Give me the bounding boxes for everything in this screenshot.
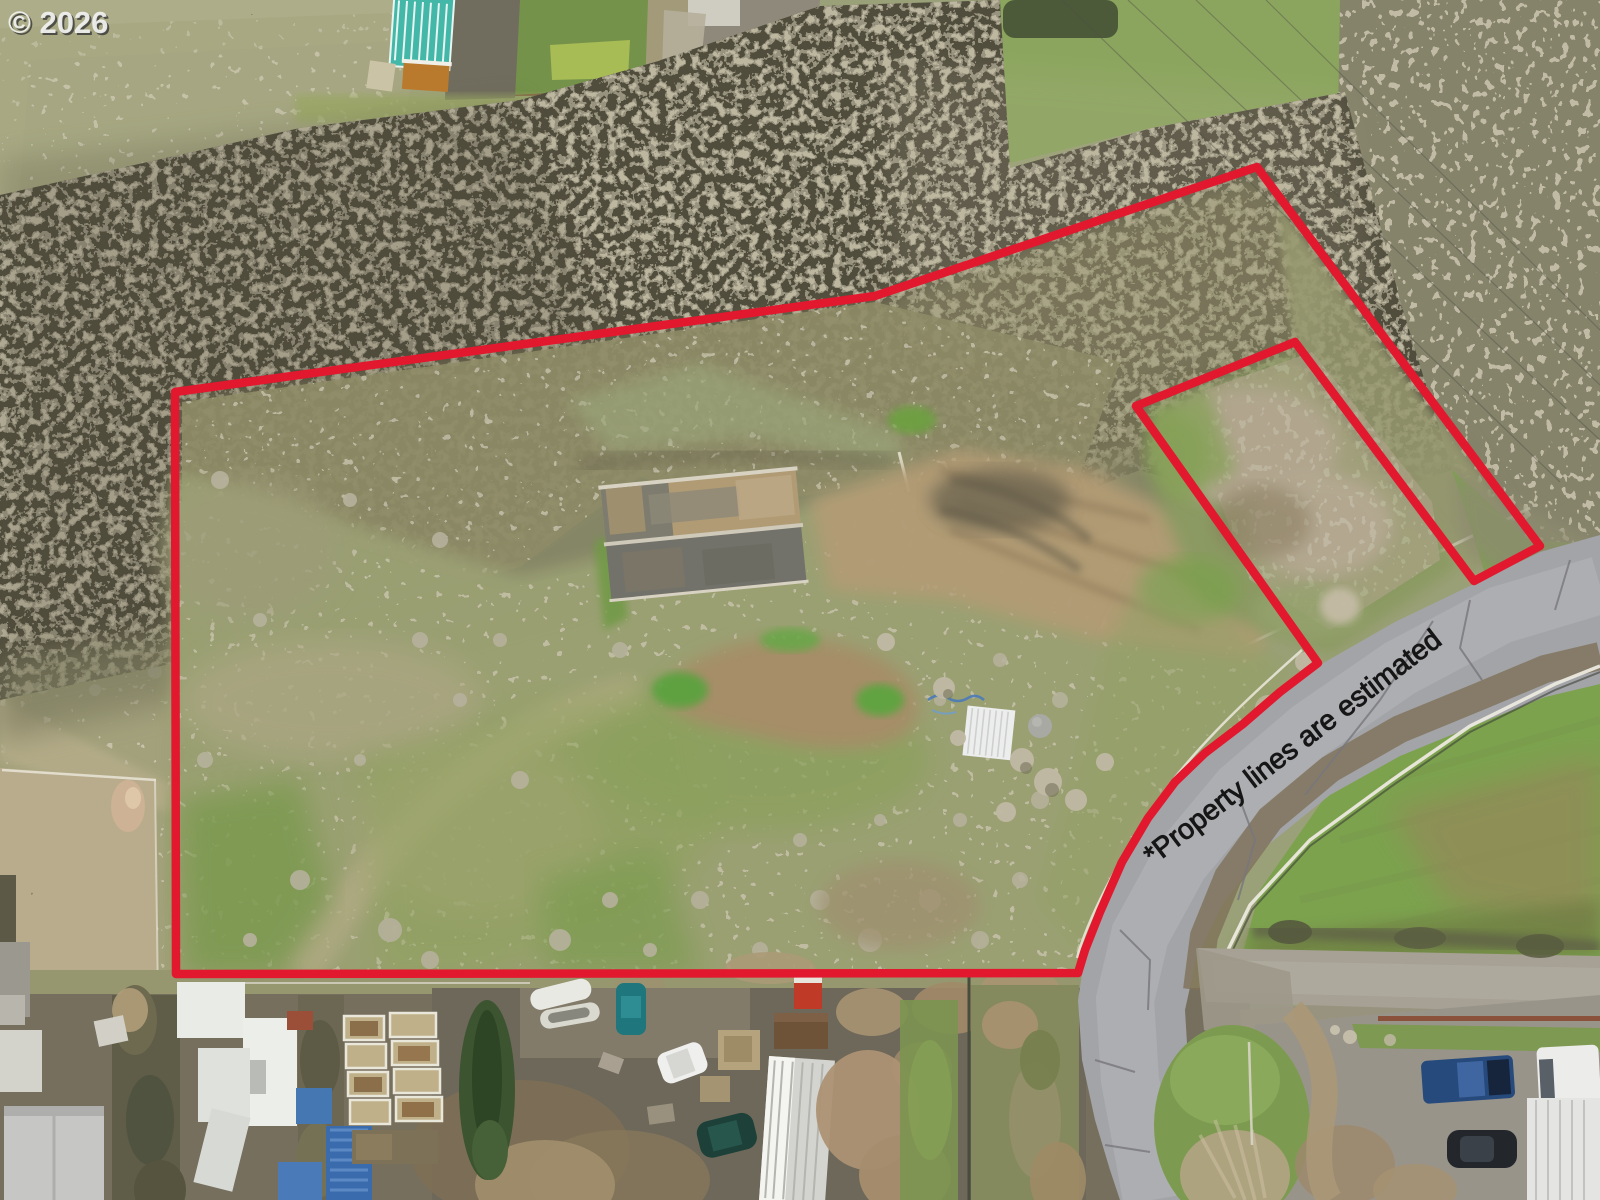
svg-text:© 2026: © 2026 [8,5,108,40]
